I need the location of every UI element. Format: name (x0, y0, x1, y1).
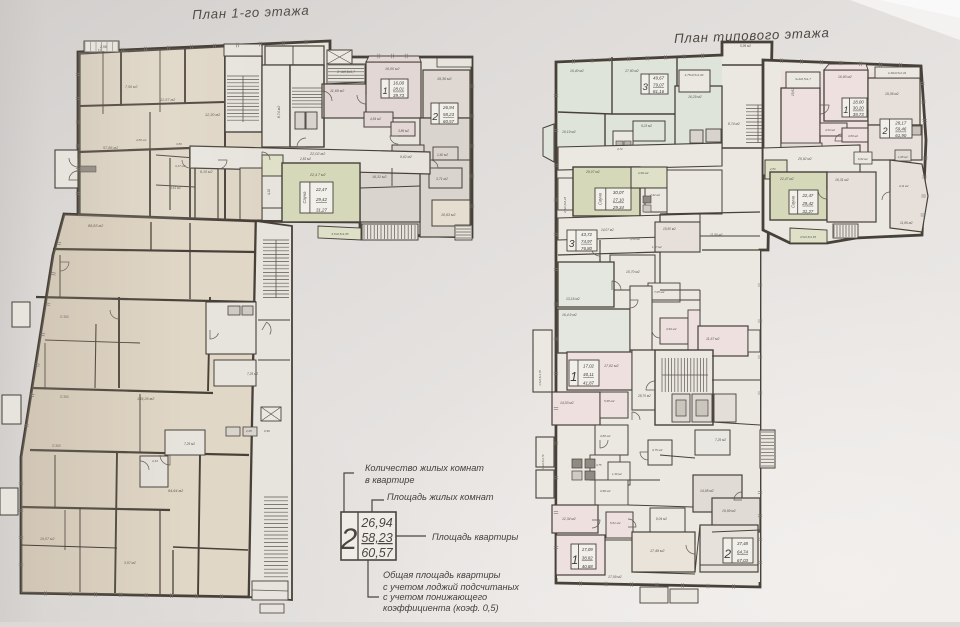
svg-text:0,96: 0,96 (264, 429, 270, 433)
svg-text:16,19 м2: 16,19 м2 (562, 130, 576, 134)
svg-text:49,67: 49,67 (653, 76, 665, 81)
svg-text:1,60 м2: 1,60 м2 (437, 153, 448, 157)
svg-text:3,5х0,5х1,65: 3,5х0,5х1,65 (331, 232, 349, 236)
svg-text:17,90 м2: 17,90 м2 (625, 69, 639, 73)
svg-text:1,5х0,5х1,76: 1,5х0,5х1,76 (541, 454, 545, 469)
svg-text:26,94: 26,94 (360, 516, 392, 530)
svg-text:4,54 м2: 4,54 м2 (370, 117, 381, 121)
svg-text:Общая площадь квартиры: Общая площадь квартиры (383, 570, 501, 580)
svg-text:1: 1 (570, 370, 577, 384)
svg-text:59,46: 59,46 (895, 127, 907, 132)
svg-text:16,29 м2: 16,29 м2 (688, 95, 702, 99)
svg-text:22,02 м2: 22,02 м2 (309, 152, 326, 156)
svg-text:17,02: 17,02 (583, 363, 595, 368)
svg-text:17,02 м2: 17,02 м2 (604, 364, 618, 368)
svg-text:76,80: 76,80 (581, 246, 593, 251)
svg-text:2,83: 2,83 (769, 167, 776, 171)
svg-text:22,4 7 м2: 22,4 7 м2 (309, 173, 325, 177)
svg-text:31,27: 31,27 (802, 209, 814, 214)
svg-text:3: 3 (569, 239, 575, 250)
svg-text:5,98 м2: 5,98 м2 (604, 399, 615, 403)
svg-text:2,99 м2: 2,99 м2 (637, 171, 649, 175)
svg-text:14,07 м2: 14,07 м2 (601, 228, 614, 232)
svg-text:1,39 м2: 1,39 м2 (612, 472, 622, 476)
svg-text:1: 1 (383, 86, 388, 96)
svg-text:8,74 м2: 8,74 м2 (728, 122, 740, 126)
svg-text:15,40 м2: 15,40 м2 (570, 69, 584, 73)
svg-text:с учетом лоджий подсчитаных: с учетом лоджий подсчитаных (383, 582, 519, 592)
svg-text:6,62 м2: 6,62 м2 (858, 157, 868, 161)
svg-text:11,69 м2: 11,69 м2 (330, 89, 344, 93)
svg-text:22,47 м2: 22,47 м2 (779, 177, 794, 181)
svg-text:3,11 м2: 3,11 м2 (899, 184, 909, 188)
svg-text:58,23: 58,23 (443, 112, 455, 117)
svg-text:19,36 м2: 19,36 м2 (885, 92, 899, 96)
svg-text:1,68 м2: 1,68 м2 (898, 155, 908, 159)
svg-text:39,73: 39,73 (393, 93, 405, 98)
svg-text:3,89 м2: 3,89 м2 (398, 129, 409, 133)
svg-text:15,50 м2: 15,50 м2 (663, 227, 676, 231)
svg-text:2,56: 2,56 (99, 45, 107, 49)
svg-text:10,63 м2: 10,63 м2 (441, 213, 455, 217)
svg-text:16,31 м2: 16,31 м2 (835, 178, 849, 182)
svg-text:1: 1 (572, 553, 579, 567)
svg-text:1,5х0,5х1,76: 1,5х0,5х1,76 (538, 370, 542, 386)
svg-text:27,10: 27,10 (612, 198, 625, 203)
svg-text:29,34: 29,34 (612, 205, 625, 210)
svg-text:Сауна: Сауна (598, 192, 603, 205)
svg-text:3: 3 (643, 82, 649, 93)
svg-text:5,99 м2: 5,99 м2 (740, 44, 751, 48)
svg-text:29,42: 29,42 (801, 201, 814, 206)
svg-text:29,07 м2: 29,07 м2 (585, 170, 600, 174)
svg-text:16,4 9 м2: 16,4 9 м2 (562, 313, 577, 317)
svg-text:19,99 м2: 19,99 м2 (722, 509, 736, 513)
svg-text:38,82: 38,82 (582, 555, 594, 560)
svg-text:15,62: 15,62 (791, 88, 795, 96)
svg-text:25,92 м2: 25,92 м2 (797, 157, 812, 161)
svg-text:74,97: 74,97 (581, 239, 593, 244)
svg-text:30,07: 30,07 (613, 190, 625, 195)
svg-text:40,68: 40,68 (582, 564, 594, 569)
svg-text:8,04 м2: 8,04 м2 (656, 517, 667, 521)
svg-text:4,32: 4,32 (267, 189, 271, 195)
svg-text:81,16: 81,16 (653, 89, 665, 94)
svg-text:Количество жилых комнат: Количество жилых комнат (365, 463, 484, 473)
svg-text:2: 2 (723, 547, 731, 561)
svg-text:4,72: 4,72 (617, 147, 623, 151)
svg-text:60,57: 60,57 (361, 546, 393, 560)
svg-text:с учетом понижающего: с учетом понижающего (383, 592, 487, 602)
svg-text:26,94: 26,94 (442, 105, 455, 110)
svg-text:19,36 м2: 19,36 м2 (437, 77, 451, 81)
svg-text:39,73: 39,73 (853, 112, 865, 117)
svg-text:3+4х0,5х1,7: 3+4х0,5х1,7 (795, 77, 811, 81)
svg-text:Площадь квартиры: Площадь квартиры (432, 532, 518, 542)
svg-text:5,61 м2: 5,61 м2 (610, 521, 621, 525)
svg-text:7,25 м2: 7,25 м2 (715, 438, 726, 442)
svg-text:11,86 м2: 11,86 м2 (900, 221, 913, 225)
svg-text:17,09: 17,09 (582, 547, 594, 552)
svg-text:43,72: 43,72 (581, 232, 593, 237)
svg-text:в квартире: в квартире (365, 475, 414, 485)
svg-text:7,05 м2: 7,05 м2 (654, 290, 665, 294)
svg-text:Сауна: Сауна (302, 191, 307, 204)
svg-text:40,11: 40,11 (583, 372, 594, 377)
svg-text:4,32 м2: 4,32 м2 (650, 193, 660, 197)
svg-text:29,42: 29,42 (315, 197, 328, 202)
svg-text:коэффициента (коэф. 0,5): коэффициента (коэф. 0,5) (383, 603, 499, 613)
svg-text:2: 2 (431, 112, 438, 123)
svg-text:2: 2 (881, 126, 887, 136)
svg-text:64,74: 64,74 (737, 549, 749, 554)
svg-text:16,00: 16,00 (393, 80, 405, 85)
svg-text:17,49 м2: 17,49 м2 (650, 549, 664, 553)
svg-text:11,67 м2: 11,67 м2 (706, 337, 719, 341)
svg-text:4,4х0,5х2,24: 4,4х0,5х2,24 (563, 197, 567, 213)
svg-text:Сауна: Сауна (790, 195, 795, 208)
svg-text:41,87: 41,87 (583, 381, 595, 386)
svg-text:16,31 м2: 16,31 м2 (372, 175, 386, 179)
svg-text:22,47: 22,47 (801, 193, 814, 198)
svg-text:3,89 м2: 3,89 м2 (848, 134, 858, 138)
svg-text:3,75: 3,75 (596, 463, 602, 467)
svg-text:28,01: 28,01 (392, 87, 405, 92)
svg-text:13,16 м2: 13,16 м2 (566, 297, 580, 301)
svg-text:3,93 м2: 3,93 м2 (666, 327, 677, 331)
svg-text:58,23: 58,23 (361, 531, 392, 545)
svg-text:10,70 м2: 10,70 м2 (626, 270, 640, 274)
svg-text:79,07: 79,07 (653, 82, 665, 87)
svg-text:2,83 м2: 2,83 м2 (299, 157, 311, 161)
svg-text:18,00: 18,00 (853, 99, 865, 104)
svg-text:4,75х0,5х1,94: 4,75х0,5х1,94 (685, 73, 704, 77)
svg-text:30,20: 30,20 (853, 106, 865, 111)
svg-text:31,27: 31,27 (316, 207, 328, 212)
svg-text:17,09 м2: 17,09 м2 (608, 575, 622, 579)
svg-text:3,88 м2: 3,88 м2 (600, 434, 611, 438)
svg-text:61,90: 61,90 (895, 133, 907, 138)
svg-text:22,47: 22,47 (315, 187, 328, 192)
svg-text:2: 2 (340, 523, 358, 556)
svg-text:3,58 м2: 3,58 м2 (630, 237, 640, 241)
svg-text:37,48: 37,48 (737, 541, 749, 546)
svg-text:14,08 м2: 14,08 м2 (700, 489, 714, 493)
svg-text:14,03 м2: 14,03 м2 (560, 401, 574, 405)
svg-text:4,49х0,5х2,34: 4,49х0,5х2,34 (888, 71, 907, 75)
svg-text:12,34 м2: 12,34 м2 (562, 517, 576, 521)
svg-text:3,5х0,5х1,65: 3,5х0,5х1,65 (800, 235, 816, 239)
svg-text:28,70 м2: 28,70 м2 (637, 394, 651, 398)
svg-text:16,90 м2: 16,90 м2 (838, 75, 852, 79)
svg-text:9,62 м2: 9,62 м2 (400, 155, 412, 159)
svg-text:3,98 м2: 3,98 м2 (600, 489, 611, 493)
svg-text:16,00 м2: 16,00 м2 (385, 67, 399, 71)
svg-text:8,74 м2: 8,74 м2 (277, 106, 281, 118)
svg-text:3,71 м2: 3,71 м2 (436, 177, 448, 181)
svg-text:28,17: 28,17 (894, 120, 907, 125)
svg-text:1,67 м2: 1,67 м2 (652, 245, 662, 249)
svg-text:4,54 м2: 4,54 м2 (825, 128, 835, 132)
svg-text:Площадь жилых комнат: Площадь жилых комнат (387, 492, 494, 502)
svg-text:9,23 м2: 9,23 м2 (641, 124, 652, 128)
svg-text:1: 1 (843, 105, 848, 115)
svg-text:67,03: 67,03 (737, 558, 749, 563)
svg-text:2+4х0,5х1,7: 2+4х0,5х1,7 (336, 70, 355, 74)
svg-text:3,75 м2: 3,75 м2 (652, 448, 663, 452)
svg-text:60,57: 60,57 (443, 119, 455, 124)
